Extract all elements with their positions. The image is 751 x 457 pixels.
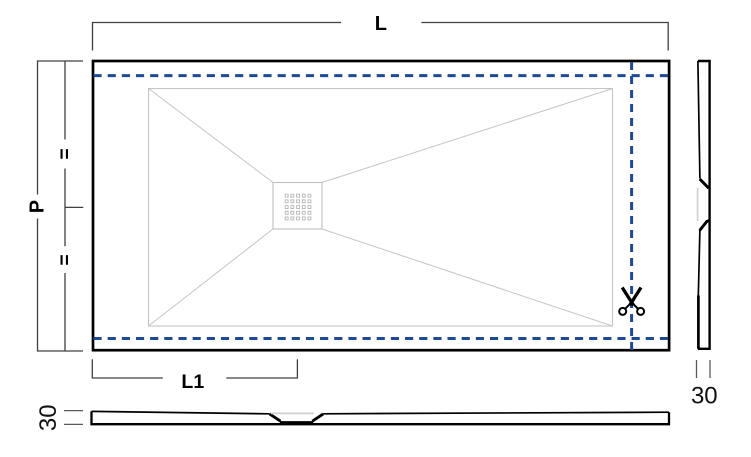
svg-text:L1: L1 xyxy=(181,371,204,393)
svg-text:30: 30 xyxy=(691,382,718,409)
svg-text:30: 30 xyxy=(35,404,62,431)
svg-text:P: P xyxy=(26,200,48,213)
svg-text:L: L xyxy=(375,13,387,35)
svg-text:=: = xyxy=(55,254,76,265)
svg-text:=: = xyxy=(55,148,76,159)
